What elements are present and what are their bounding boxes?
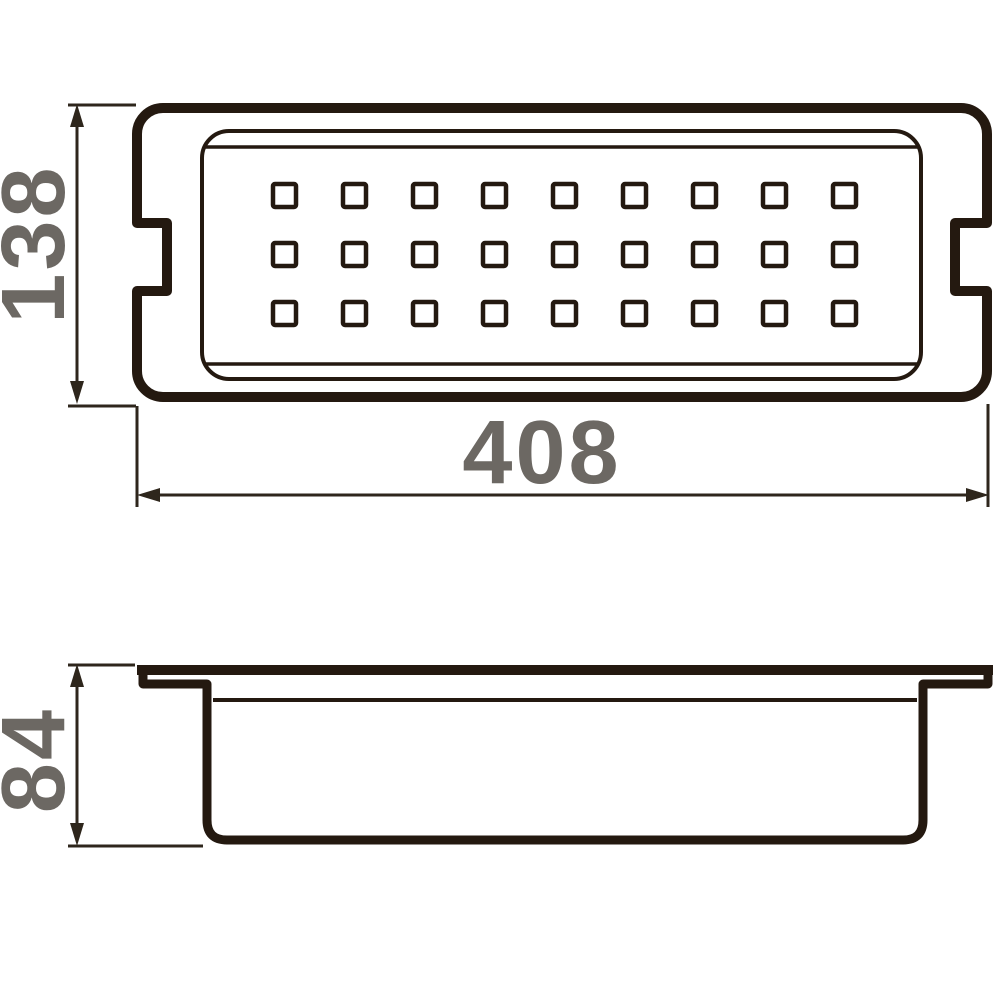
- arrowhead-left: [137, 488, 160, 502]
- dim-label-height-138: 138: [0, 164, 84, 323]
- arrowhead-up: [70, 664, 84, 687]
- top-view: [137, 108, 987, 397]
- arrowhead-right: [966, 488, 989, 502]
- tray-dimension-drawing: 138 408 84: [0, 0, 1000, 1000]
- dimension-top-view-height: 138: [0, 104, 136, 406]
- tray-outline-top-view: [137, 108, 987, 397]
- arrowhead-down: [70, 381, 84, 404]
- tray-body-profile: [143, 671, 988, 840]
- technical-drawing-canvas: 138 408 84: [0, 0, 1000, 1000]
- side-view: [137, 670, 993, 840]
- dim-label-width-408: 408: [462, 403, 621, 503]
- dimension-top-view-width: 408: [137, 403, 989, 507]
- arrowhead-down: [70, 823, 84, 846]
- dimension-side-view-height: 84: [0, 664, 203, 846]
- arrowhead-up: [70, 104, 84, 127]
- dim-label-height-84: 84: [0, 707, 84, 813]
